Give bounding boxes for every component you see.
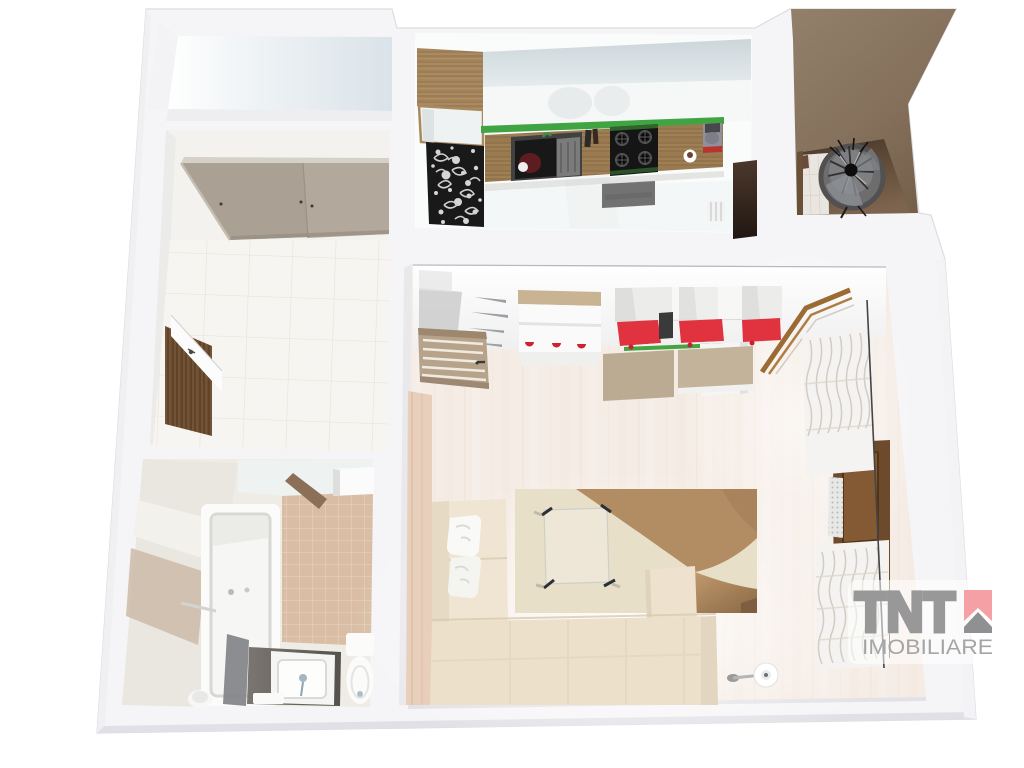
svg-text:IMOBILIARE: IMOBILIARE: [862, 635, 993, 659]
svg-text:TNT: TNT: [855, 580, 955, 643]
